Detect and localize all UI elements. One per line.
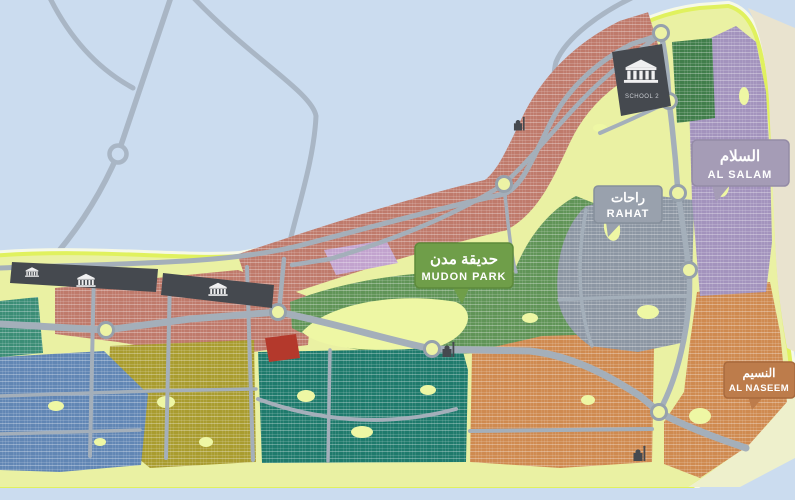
- sign-arabic-label: النسيم: [743, 366, 776, 381]
- park-patch: [420, 385, 436, 395]
- roundabout: [682, 263, 697, 278]
- sign-arabic-label: حديقة مدن: [430, 251, 498, 268]
- roundabout: [271, 305, 286, 320]
- park-patch: [522, 313, 538, 323]
- road-segment: [470, 429, 652, 431]
- roundabout: [654, 26, 669, 41]
- road-segment: [328, 350, 330, 461]
- roundabout: [497, 177, 512, 192]
- master-plan-map: SCHOOL 2 حديقة مدن MUDON PARK راحات RAHA…: [0, 0, 795, 500]
- sign-latin-label: RAHAT: [607, 208, 650, 220]
- roundabout: [652, 405, 667, 420]
- park-patch: [739, 87, 749, 105]
- green-field-block: [672, 38, 715, 123]
- roundabout: [425, 342, 440, 357]
- park-patch: [351, 426, 373, 438]
- district-teal-village: [258, 348, 468, 463]
- school-label: SCHOOL 2: [625, 94, 659, 100]
- red-block: [265, 334, 300, 362]
- park-patch: [689, 408, 711, 424]
- water-roundabout: [110, 146, 127, 163]
- park-patch: [94, 438, 106, 446]
- park-patch: [297, 390, 315, 402]
- sign-arabic-label: السلام: [720, 148, 760, 165]
- sign-arabic-label: راحات: [611, 190, 645, 206]
- park-patch: [637, 305, 659, 319]
- park-patch: [199, 437, 213, 447]
- park-patch: [48, 401, 64, 411]
- roundabout: [671, 186, 686, 201]
- water-bottom: [0, 488, 795, 500]
- district-texture: [258, 348, 468, 463]
- sign-latin-label: MUDON PARK: [422, 271, 507, 283]
- sign-latin-label: AL SALAM: [708, 169, 773, 181]
- roundabout: [99, 323, 114, 338]
- sign-latin-label: AL NASEEM: [729, 383, 789, 394]
- park-patch: [581, 395, 595, 405]
- district-texture: [672, 38, 715, 123]
